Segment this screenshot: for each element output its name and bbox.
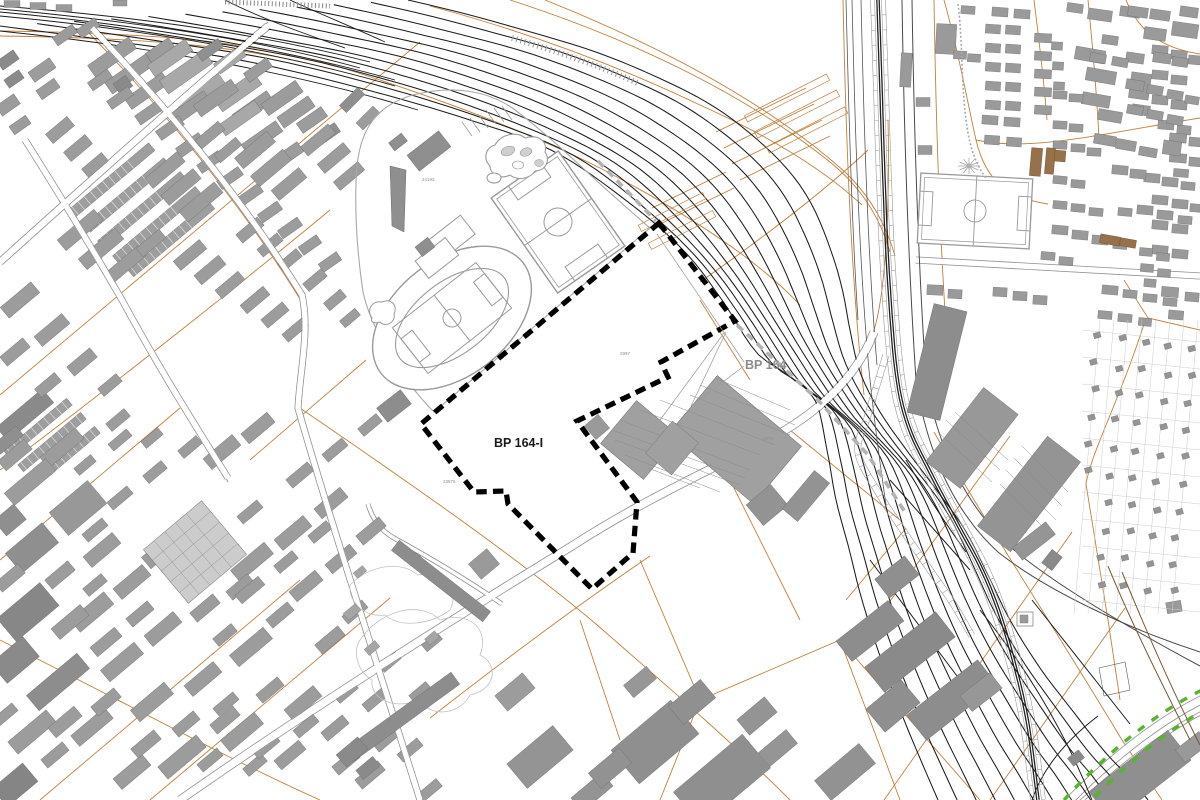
svg-text:2973: 2973 (763, 436, 774, 441)
svg-text:BP 164-I: BP 164-I (494, 436, 543, 450)
svg-text:BP 164: BP 164 (745, 358, 787, 372)
svg-text:23876: 23876 (443, 479, 456, 484)
svg-text:24193: 24193 (422, 177, 435, 182)
svg-text:2997: 2997 (620, 351, 631, 356)
